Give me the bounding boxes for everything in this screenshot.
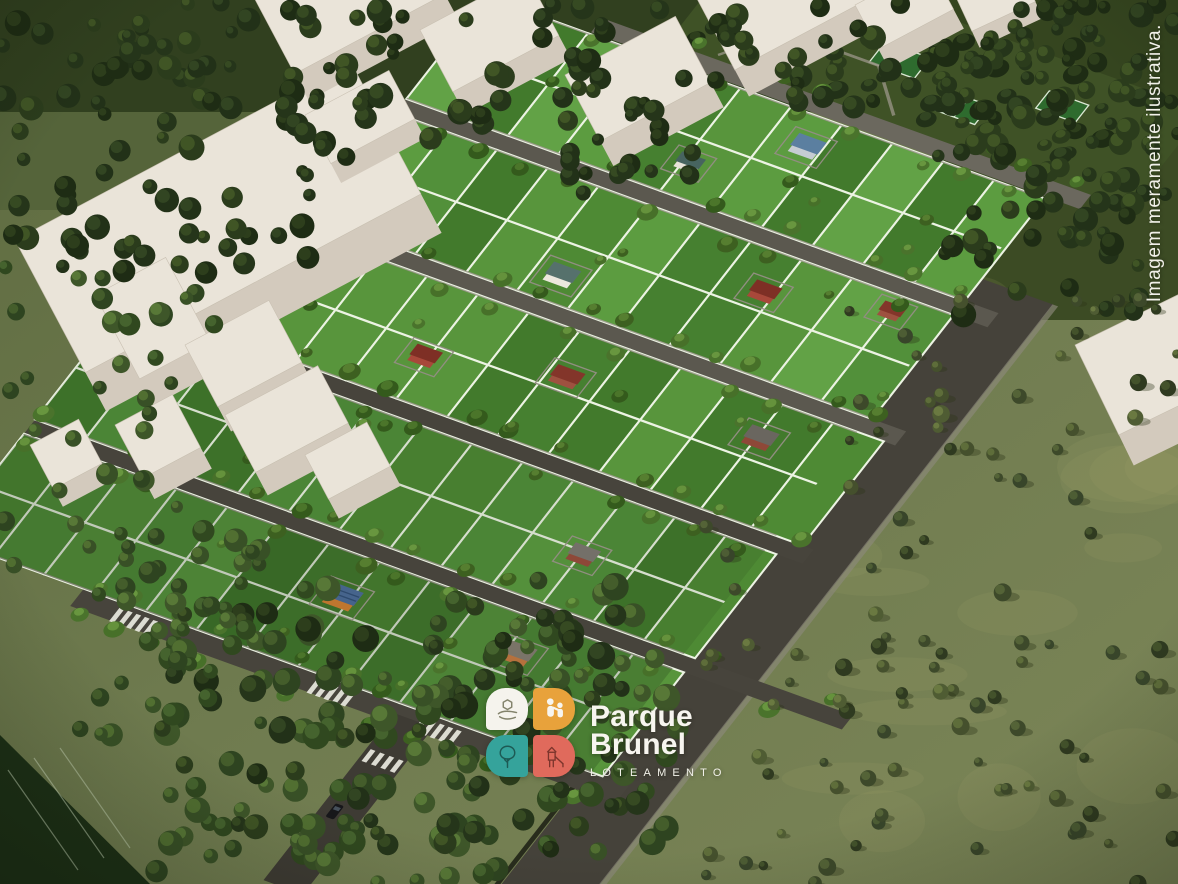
family-icon	[540, 695, 569, 724]
logo-tile-care	[486, 688, 528, 730]
brand-logo: Parque Brunel LOTEAMENTO	[486, 688, 728, 779]
tree-icon	[493, 742, 522, 771]
logo-tile-playground	[533, 735, 575, 777]
brand-name-line1: Parque	[590, 703, 728, 731]
aerial-render: Parque Brunel LOTEAMENTO Imagem merament…	[0, 0, 1178, 884]
logo-tiles	[486, 688, 575, 777]
care-hands-icon	[493, 695, 522, 724]
logo-tile-tree	[486, 735, 528, 777]
disclaimer-watermark: Imagem meramente ilustrativa.	[1144, 24, 1166, 302]
logo-tile-family	[533, 688, 575, 730]
playground-icon	[540, 742, 569, 771]
brand-tagline: LOTEAMENTO	[590, 767, 728, 779]
brand-name-line2: Brunel	[590, 731, 728, 759]
brand-text: Parque Brunel LOTEAMENTO	[590, 688, 728, 779]
